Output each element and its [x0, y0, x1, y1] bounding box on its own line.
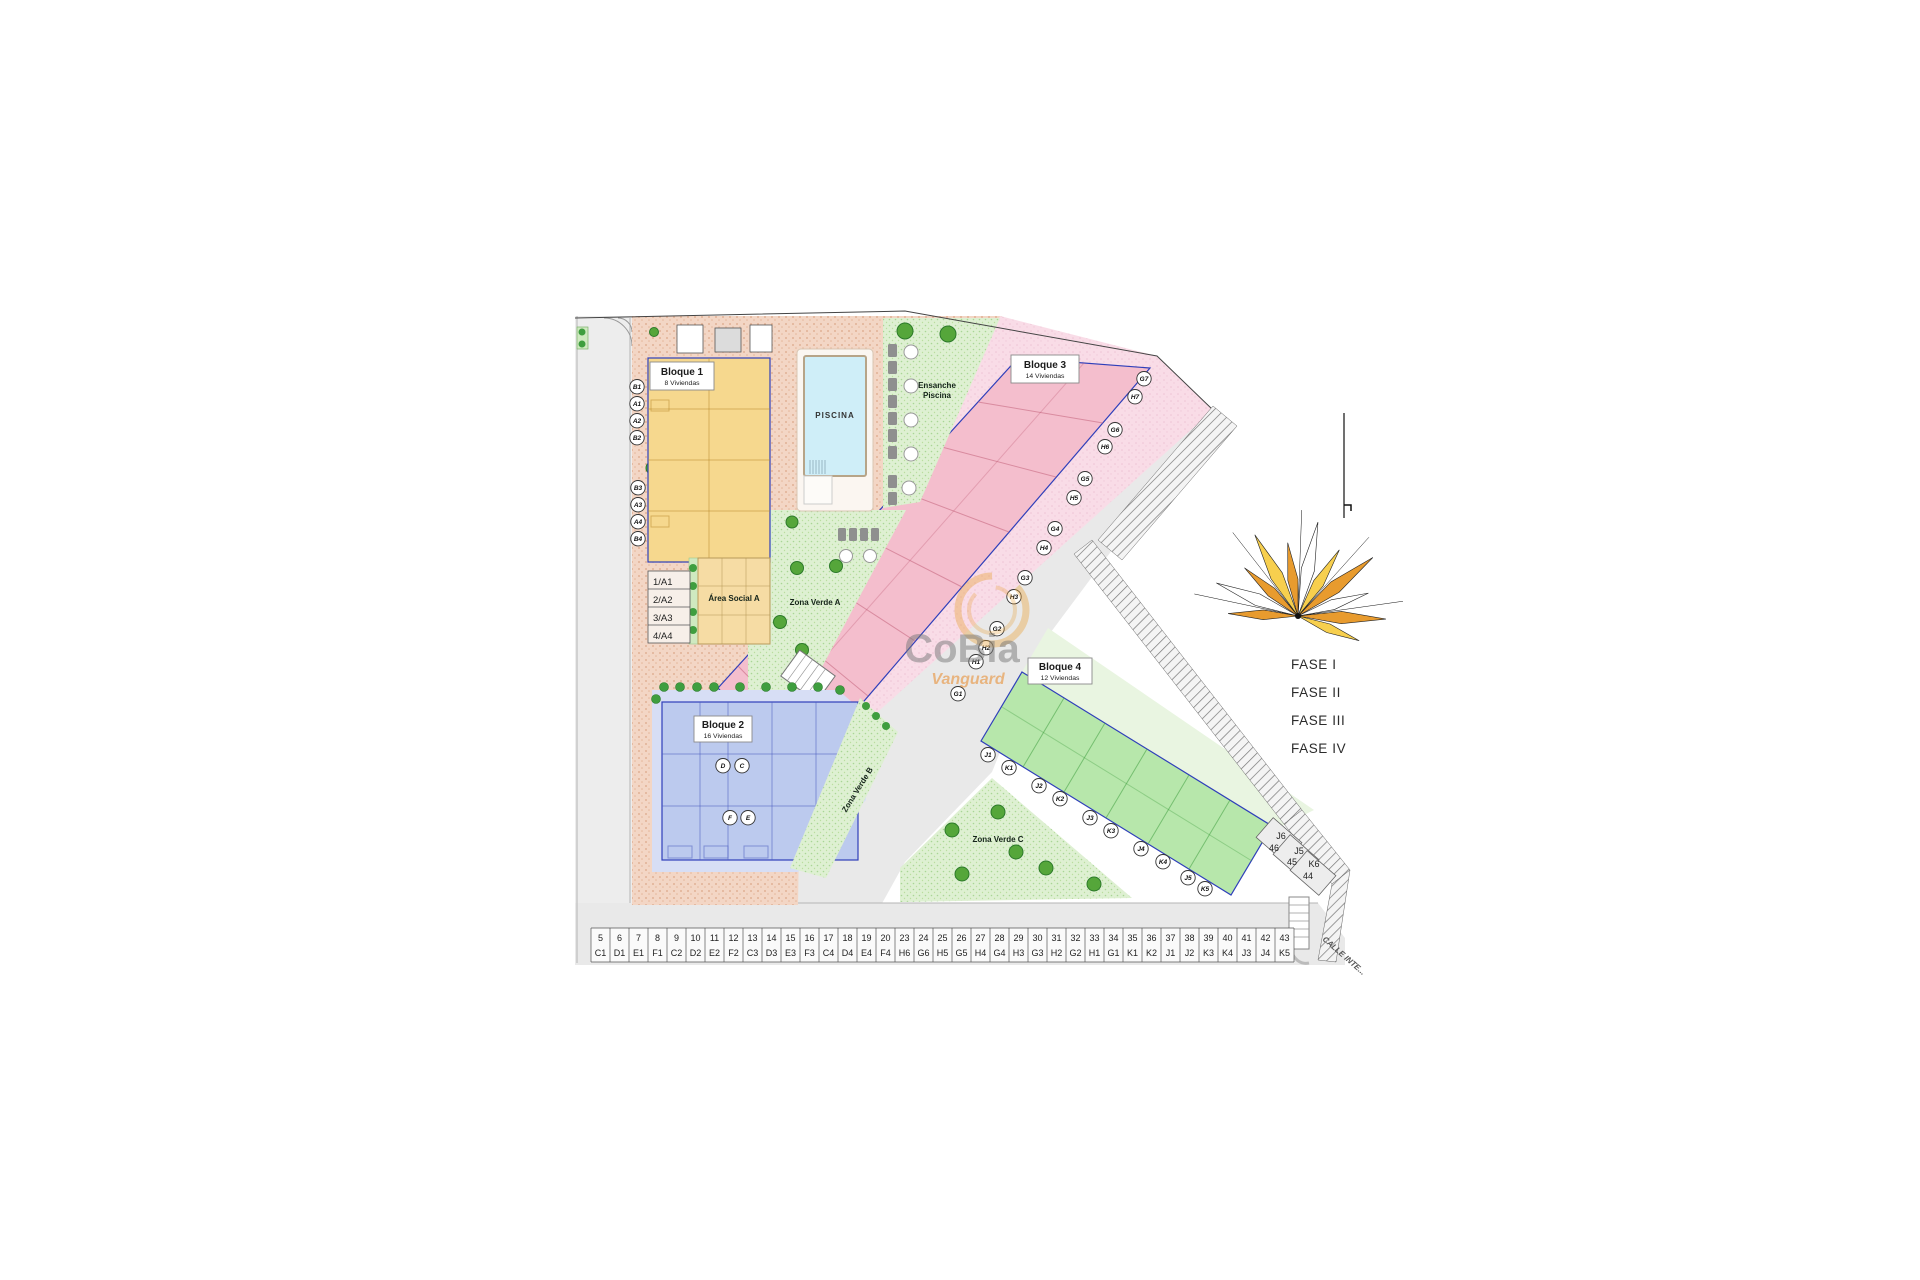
parking-cell-num: 24 [918, 933, 928, 943]
parking-cell-num: 43 [1279, 933, 1289, 943]
unit-circle-label: B1 [633, 384, 642, 391]
parking-cell-num: 7 [636, 933, 641, 943]
parking-cell-code: E1 [633, 948, 644, 958]
bloque3-units: 14 Viviendas [1026, 373, 1065, 380]
parking-cell-num: 17 [823, 933, 833, 943]
parking-cell-code: K5 [1279, 948, 1290, 958]
parking-cell-num: 19 [861, 933, 871, 943]
left-road [575, 316, 632, 965]
reference-tick [1344, 505, 1351, 511]
tree [650, 328, 659, 337]
unit-circle-label: K3 [1107, 828, 1116, 835]
parking-cell-num: 37 [1165, 933, 1175, 943]
unit-circle-label: G1 [954, 691, 963, 698]
parking-cell-code: E2 [709, 948, 720, 958]
bush [579, 341, 586, 348]
unit-circle-label: K5 [1201, 886, 1210, 893]
parking-cell-num: 26 [956, 933, 966, 943]
parking-cell-code: F1 [652, 948, 663, 958]
unit-circle-label: G5 [1081, 476, 1090, 483]
parking-cell-num: 11 [710, 933, 719, 943]
unit-circle-label: G6 [1111, 427, 1120, 434]
parking-cell-code: G4 [993, 948, 1005, 958]
parking-cell-code: H1 [1089, 948, 1101, 958]
unit-circle-label: A1 [632, 401, 642, 408]
parking-cell-code: H4 [975, 948, 987, 958]
parking-cell-num: 34 [1108, 933, 1118, 943]
phase-item: FASE IV [1291, 741, 1346, 756]
bush [579, 329, 586, 336]
unit-circle-label: B4 [634, 536, 643, 543]
unit-circle-label: K2 [1056, 796, 1065, 803]
unit-circle-label: J1 [984, 752, 992, 759]
parking-cell-num: 14 [766, 933, 776, 943]
parking-cell-num: 33 [1089, 933, 1099, 943]
parking-cell-num: 25 [937, 933, 947, 943]
parking-cell-num: 8 [655, 933, 660, 943]
parking-cell-code: J3 [1242, 948, 1252, 958]
parking-cell-code: F2 [728, 948, 739, 958]
parking-cell-code: J1 [1166, 948, 1176, 958]
parking-cell-num: 16 [804, 933, 814, 943]
parking-cell-num: 15 [785, 933, 795, 943]
parking-cell-code: H5 [937, 948, 949, 958]
unit-circle-label: K1 [1005, 765, 1014, 772]
bloque2-name: Bloque 2 [702, 720, 745, 731]
pool-annex [804, 476, 832, 504]
parking-cell-code: G5 [955, 948, 967, 958]
site-plan-canvas: PISCINA Área Social A 1/A1 2/A2 3/A3 4/A… [0, 0, 1920, 1280]
unit-circle-label: G4 [1051, 526, 1060, 533]
corner-cell-num: 45 [1287, 857, 1297, 867]
parking-cell-code: C4 [823, 948, 835, 958]
bloque1-name: Bloque 1 [661, 367, 704, 378]
parking-cell-num: 31 [1051, 933, 1061, 943]
corner-cell-num: 46 [1269, 843, 1279, 853]
parking-cell-num: 20 [880, 933, 890, 943]
unit-circle-label: E [746, 815, 751, 822]
parking-cell-code: K2 [1146, 948, 1157, 958]
site-plan-svg: PISCINA Área Social A 1/A1 2/A2 3/A3 4/A… [0, 0, 1920, 1280]
zona-verde-c-label: Zona Verde C [972, 835, 1023, 844]
parking-cell-code: E4 [861, 948, 872, 958]
unit-circle-label: B2 [633, 435, 642, 442]
phase-item: FASE I [1291, 657, 1337, 672]
parking-cell-num: 32 [1070, 933, 1080, 943]
pool-group: PISCINA [797, 349, 873, 511]
parking-cell-code: H6 [899, 948, 911, 958]
parking-cell-num: 40 [1222, 933, 1232, 943]
area-social-group: Área Social A 1/A1 2/A2 3/A3 4/A4 [648, 558, 770, 644]
parking-cell-num: 36 [1146, 933, 1156, 943]
phase-legend: FASE I FASE II FASE III FASE IV [1291, 657, 1346, 756]
parking-cell-num: 12 [728, 933, 738, 943]
unit-circle-label: J3 [1086, 815, 1094, 822]
parking-cell-code: H3 [1013, 948, 1025, 958]
unit-circle-label: H7 [1131, 394, 1140, 401]
parking-cell-code: D4 [842, 948, 854, 958]
watermark-line1: CoBia [904, 627, 1020, 671]
reference-line [1344, 413, 1351, 518]
sun-loungers [888, 344, 897, 505]
bloque4-name: Bloque 4 [1039, 662, 1082, 673]
parking-cell-num: 6 [617, 933, 622, 943]
area-social-label: Área Social A [708, 594, 760, 603]
parking-cell-num: 41 [1241, 933, 1251, 943]
unit-table-row: 1/A1 [653, 577, 673, 588]
parking-cell-code: C2 [671, 948, 683, 958]
unit-circle-label: D [721, 763, 726, 770]
piscina-label: PISCINA [815, 411, 854, 420]
unit-circle-label: H4 [1040, 545, 1049, 552]
bloque1-units: 8 Viviendas [664, 380, 700, 387]
bloque2-units: 16 Viviendas [704, 733, 743, 740]
parking-cell-code: E3 [785, 948, 796, 958]
unit-circle-label: A2 [632, 418, 642, 425]
compass-fan [1194, 510, 1403, 641]
ensanche-label-1: Ensanche [918, 381, 956, 390]
parking-cell-code: K4 [1222, 948, 1233, 958]
parking-cell-num: 42 [1260, 933, 1270, 943]
bloque3-name: Bloque 3 [1024, 360, 1067, 371]
parking-cell-num: 5 [598, 933, 603, 943]
parking-cell-num: 29 [1013, 933, 1023, 943]
parking-cell-num: 30 [1032, 933, 1042, 943]
bloque4-units: 12 Viviendas [1041, 675, 1080, 682]
unit-circle-label: A3 [633, 502, 643, 509]
unit-table-row: 3/A3 [653, 613, 673, 624]
zona-verde-a-label: Zona Verde A [790, 598, 841, 607]
parking-cell-code: J4 [1261, 948, 1271, 958]
entry-structure [750, 325, 772, 352]
unit-circle-label: J5 [1184, 875, 1192, 882]
parking-cell-code: C3 [747, 948, 759, 958]
phase-item: FASE III [1291, 713, 1345, 728]
parasol [864, 550, 877, 563]
unit-circle-label: G3 [1021, 575, 1030, 582]
parking-cell-code: G3 [1031, 948, 1043, 958]
unit-table-row: 4/A4 [653, 631, 673, 642]
parking-cell-num: 9 [674, 933, 679, 943]
parking-cell-code: D1 [614, 948, 626, 958]
unit-table-row: 2/A2 [653, 595, 673, 606]
unit-circle-label: B3 [634, 485, 643, 492]
corner-cell-unit: J5 [1294, 846, 1304, 856]
parking-cell-code: D2 [690, 948, 702, 958]
corner-cell-num: 44 [1303, 871, 1313, 881]
parking-cell-num: 38 [1184, 933, 1194, 943]
corner-cell-unit: K6 [1308, 859, 1319, 869]
utility-room [715, 328, 741, 352]
parking-cell-num: 18 [842, 933, 852, 943]
parking-cell-code: K1 [1127, 948, 1138, 958]
phase-item: FASE II [1291, 685, 1341, 700]
unit-circle-label: H6 [1101, 444, 1110, 451]
parking-cell-num: 28 [994, 933, 1004, 943]
parking-cell-num: 27 [975, 933, 985, 943]
parking-cell-num: 10 [690, 933, 700, 943]
watermark-line2: Vanguard [931, 671, 1005, 688]
parking-cell-code: G2 [1069, 948, 1081, 958]
parking-cell-num: 23 [899, 933, 909, 943]
parking-cell-code: G6 [917, 948, 929, 958]
parking-cell-code: K3 [1203, 948, 1214, 958]
parking-row-group: 5C16D17E18F19C210D211E212F213C314D315E31… [591, 928, 1294, 962]
unit-circle-label: A4 [633, 519, 643, 526]
unit-circle-label: J4 [1137, 846, 1145, 853]
unit-circle-label: H5 [1070, 495, 1079, 502]
parking-cell-code: H2 [1051, 948, 1063, 958]
parking-cell-num: 39 [1203, 933, 1213, 943]
unit-circle-label: J2 [1035, 783, 1043, 790]
parking-cell-code: F4 [880, 948, 891, 958]
unit-circle-label: C [740, 763, 745, 770]
unit-circle-label: K4 [1159, 859, 1168, 866]
parking-cell-code: J2 [1185, 948, 1195, 958]
parking-cell-code: C1 [595, 948, 607, 958]
entry-structure [677, 325, 703, 353]
ensanche-label-2: Piscina [923, 391, 952, 400]
parking-cell-num: 13 [747, 933, 757, 943]
corner-cell-unit: J6 [1276, 831, 1286, 841]
parking-cell-num: 35 [1127, 933, 1137, 943]
parking-cell-code: F3 [804, 948, 815, 958]
parking-cell-code: D3 [766, 948, 778, 958]
parasol [840, 550, 853, 563]
unit-circle-label: G7 [1140, 376, 1149, 383]
fan-center [1295, 613, 1301, 619]
parking-cell-code: G1 [1107, 948, 1119, 958]
